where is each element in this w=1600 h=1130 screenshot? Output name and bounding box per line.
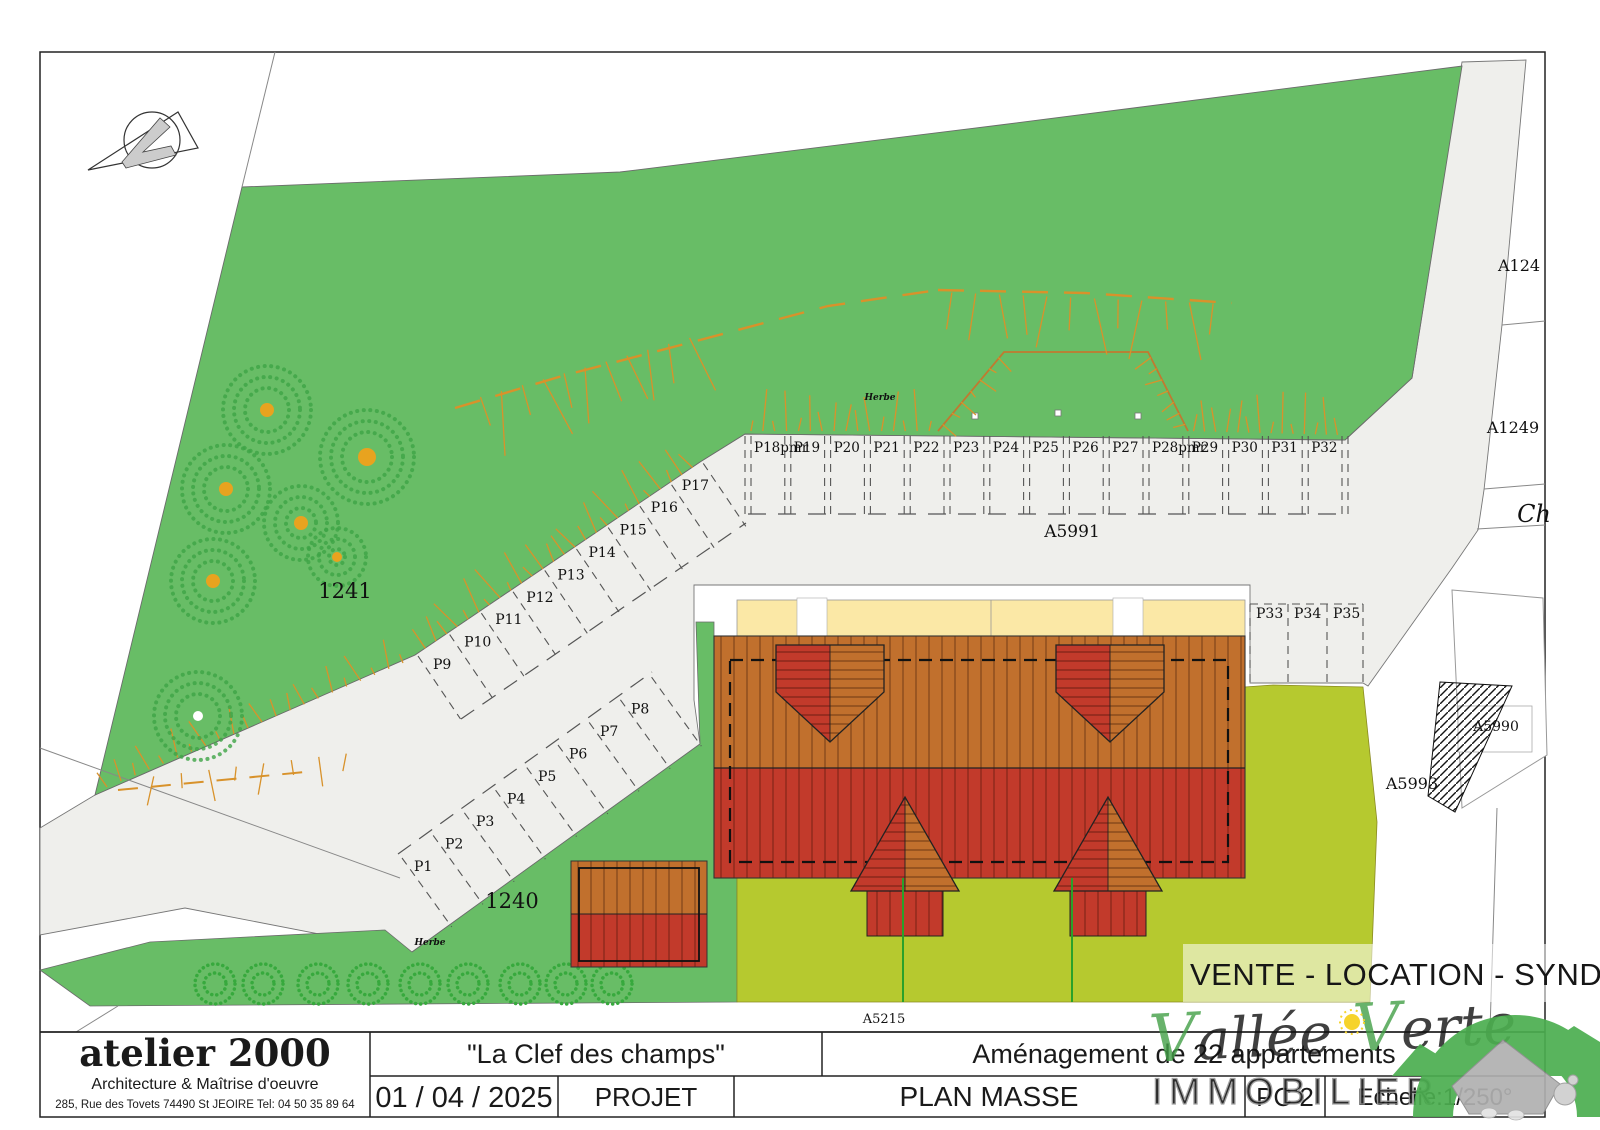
parking-space-label: P5	[538, 769, 556, 785]
parking-space-label: P9	[433, 657, 451, 673]
stairwell-gap	[1113, 598, 1143, 638]
slope-tick	[810, 395, 811, 431]
slope-tick	[181, 773, 182, 788]
survey-marker	[1135, 413, 1141, 419]
tree-trunk	[260, 403, 274, 417]
parking-space-label: P2	[445, 837, 463, 853]
parking-space-label: P24	[993, 440, 1019, 456]
firm-address: 285, Rue des Tovets 74490 St JEOIRE Tel:…	[55, 1099, 355, 1111]
parcel-label: A1249	[1486, 418, 1539, 437]
parking-space-label: P20	[834, 440, 860, 456]
parking-space-label: P13	[557, 567, 584, 583]
parking-space-label: P1	[414, 859, 432, 875]
parking-space-label: P12	[526, 590, 553, 606]
parking-space-label: P26	[1072, 440, 1098, 456]
parking-space-label: P34	[1294, 606, 1321, 622]
parking-space-label: P6	[569, 747, 587, 763]
stairwell-gap	[797, 598, 827, 638]
parking-space-label: P27	[1112, 440, 1138, 456]
brand-immobilier-text: IMMOBILIER	[1152, 1071, 1440, 1112]
project-phase: PROJET	[595, 1082, 698, 1112]
parking-space-label: P11	[495, 612, 522, 628]
watermarks: VENTE - LOCATION - SYNDIC Vallée Verte I…	[1147, 944, 1600, 1120]
parking-space-label: P32	[1311, 440, 1337, 456]
tree-trunk	[206, 574, 220, 588]
garage-building	[571, 861, 707, 967]
logo-foot-icon	[1481, 1108, 1497, 1118]
firm-name: atelier 2000	[79, 1031, 331, 1075]
parking-space-label: P33	[1256, 606, 1283, 622]
drawing-date: 01 / 04 / 2025	[375, 1082, 552, 1114]
tree-trunk	[332, 552, 342, 562]
parking-space-label: P35	[1333, 606, 1360, 622]
parking-space-label: P30	[1232, 440, 1258, 456]
grass-note-label: Herbe	[864, 393, 896, 403]
tree-trunk	[358, 448, 376, 466]
logo-foot-icon	[1508, 1110, 1524, 1120]
parking-space-label: P17	[682, 478, 709, 494]
grass-note-label: Herbe	[414, 938, 446, 948]
tree-trunk	[294, 516, 308, 530]
parking-space-label: P23	[953, 440, 979, 456]
firm-subtitle: Architecture & Maîtrise d'oeuvre	[91, 1076, 318, 1093]
logo-hand-icon	[1554, 1083, 1576, 1105]
vente-location-syndic-banner: VENTE - LOCATION - SYNDIC	[1190, 957, 1600, 992]
parking-space-label: P29	[1192, 440, 1218, 456]
parking-space-label: P16	[651, 500, 678, 516]
parking-space-label: P21	[873, 440, 899, 456]
parking-space-label: P3	[476, 814, 494, 830]
project-name: "La Clef des champs"	[467, 1039, 725, 1069]
drawing-title: PLAN MASSE	[900, 1081, 1079, 1112]
parcel-label: A5215	[862, 1012, 905, 1027]
parcel-label: 1240	[485, 889, 538, 913]
parcel-label: A124	[1497, 256, 1540, 275]
logo-thumb-icon	[1568, 1075, 1578, 1085]
parking-space-label: P22	[913, 440, 939, 456]
parking-space-label: P31	[1271, 440, 1297, 456]
parking-space-label: P19	[794, 440, 820, 456]
road-name-label: Ch	[1517, 500, 1551, 528]
parking-space-label: P7	[600, 724, 618, 740]
sun-icon	[1344, 1014, 1360, 1030]
survey-marker	[1055, 410, 1061, 416]
parking-space-label: P8	[631, 702, 649, 718]
plan-masse-sheet: P18pmrP19P20P21P22P23P24P25P26P27P28pmrP…	[0, 0, 1600, 1130]
tree-trunk	[219, 482, 233, 496]
parcel-label: 1241	[318, 579, 371, 603]
parking-space-label: P14	[589, 545, 616, 561]
tree-trunk	[193, 711, 203, 721]
parking-space-label: P4	[507, 792, 525, 808]
site-plan-canvas: P18pmrP19P20P21P22P23P24P25P26P27P28pmrP…	[0, 0, 1600, 1130]
parking-space-label: P25	[1033, 440, 1059, 456]
parking-space-label: P15	[620, 523, 647, 539]
parking-space-label: P10	[464, 635, 491, 651]
parcel-label: A5991	[1043, 522, 1100, 542]
